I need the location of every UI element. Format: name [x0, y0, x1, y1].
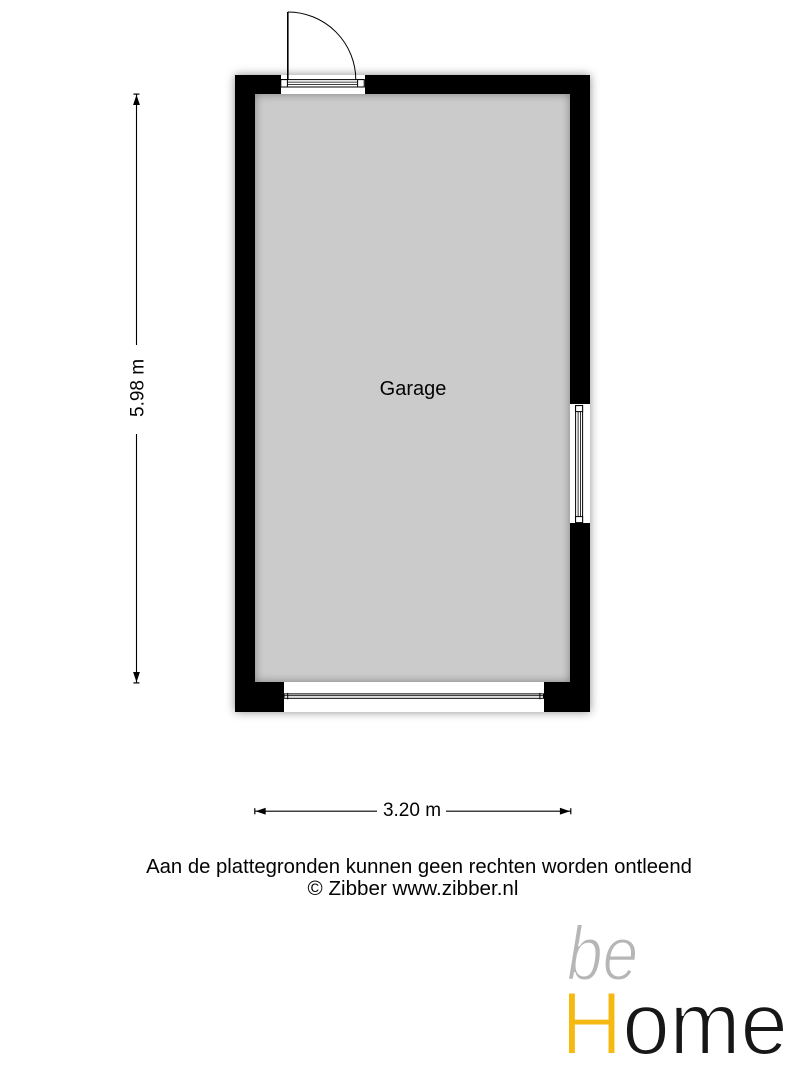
svg-text:5.98 m: 5.98 m	[128, 359, 149, 417]
